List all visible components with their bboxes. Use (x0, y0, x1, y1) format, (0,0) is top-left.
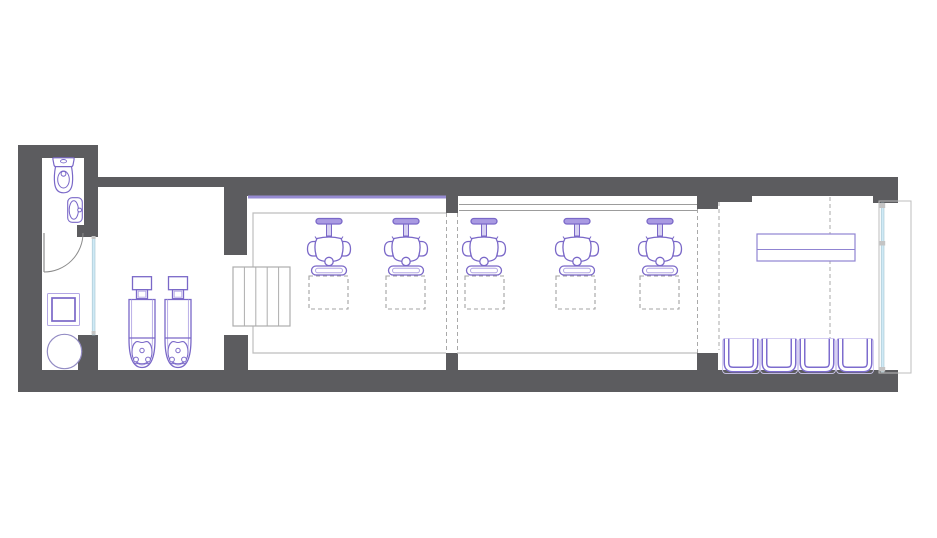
reception-desk (757, 234, 855, 261)
station-mat-4 (556, 276, 595, 309)
washroom-wall-recess (98, 187, 224, 196)
floor-plan-canvas (0, 0, 937, 538)
storefront-mullion-mid (880, 241, 886, 246)
station-mat-3 (465, 276, 504, 309)
mirror-ledge (248, 196, 446, 199)
divider2-top-tab (697, 196, 718, 209)
station-mat-1 (309, 276, 348, 309)
styling-chair-5 (639, 219, 682, 276)
storefront-glass (881, 203, 884, 372)
washarea-divider-wall (224, 196, 247, 255)
sink (68, 198, 83, 223)
styling-chair-4 (556, 219, 599, 276)
waiting-chair-3 (799, 338, 836, 373)
divider1-bottom-stub (446, 353, 458, 370)
station-mat-2 (386, 276, 425, 309)
storefront-mullion-top (880, 203, 886, 208)
washarea-divider-stub (224, 335, 248, 370)
styling-chair-3 (463, 219, 506, 276)
utility-stool (47, 334, 81, 368)
waiting-chair-2 (761, 338, 798, 373)
door-swing-arc (44, 233, 83, 272)
shampoo-wash-unit-2 (165, 277, 191, 368)
divider2-bottom-stub (697, 353, 718, 370)
bathroom-right-wall (84, 158, 98, 225)
storefront-mullion-bottom (880, 367, 886, 372)
styling-chair-2 (385, 219, 428, 276)
shampoo-wash-unit-1 (129, 277, 155, 368)
waiting-chair-4 (837, 338, 874, 373)
bathroom-door-stub (77, 225, 98, 237)
station-mat-5 (640, 276, 679, 309)
styling-chair-1 (308, 219, 351, 276)
glass-partition-cap-bottom (92, 331, 96, 335)
waiting-chair-1 (723, 338, 760, 373)
glass-partition (92, 237, 95, 335)
toilet (53, 158, 74, 193)
reception-corner-block (873, 196, 898, 203)
divider1-top-tab (446, 196, 458, 213)
glass-partition-cap-top (92, 236, 96, 239)
steps-box (233, 267, 290, 326)
left-outer-wall (18, 145, 42, 392)
floor-plan-page (0, 0, 937, 538)
reception-top-lip (718, 196, 752, 202)
